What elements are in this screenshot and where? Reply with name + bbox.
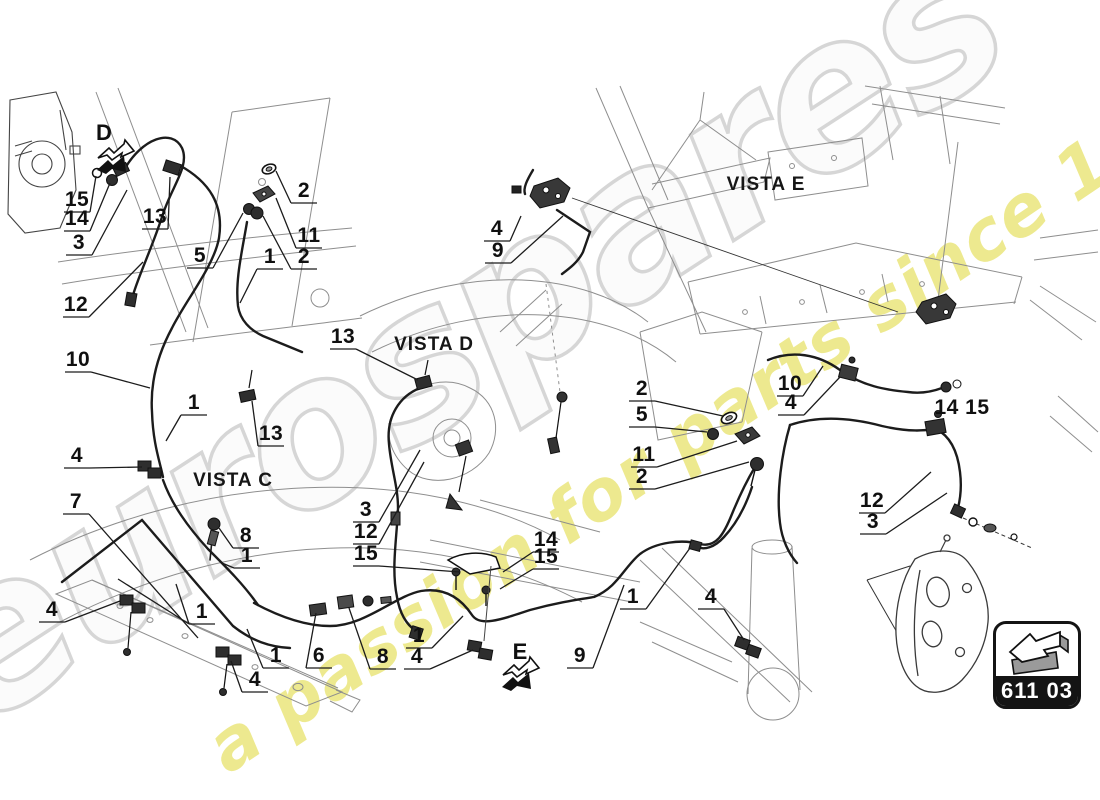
svg-text:eurospares: eurospares	[0, 0, 1043, 771]
leader-line	[620, 548, 690, 609]
parts-diagram-page: eurospares a passion for parts since 198…	[0, 0, 1100, 800]
leader-line	[698, 609, 744, 640]
leader-line	[276, 198, 322, 248]
leader-line	[65, 372, 150, 388]
3d-arrow-left-icon	[1004, 624, 1070, 676]
watermark-brand-text: eurospares	[0, 0, 1043, 771]
leader-line	[63, 262, 143, 317]
rear-caliper-drawing	[896, 535, 988, 692]
leader-line	[66, 190, 127, 255]
diagram-canvas: eurospares a passion for parts since 198…	[0, 0, 1100, 800]
badge-code: 611 03	[996, 676, 1078, 706]
badge-area	[996, 624, 1078, 676]
leader-line	[276, 171, 317, 203]
leader-line	[240, 269, 283, 303]
part-group-badge[interactable]: 611 03	[993, 621, 1081, 709]
leader-line	[142, 177, 170, 229]
leader-line	[859, 472, 931, 513]
view-e-arrow-icon	[502, 657, 539, 691]
leader-line	[64, 183, 110, 231]
